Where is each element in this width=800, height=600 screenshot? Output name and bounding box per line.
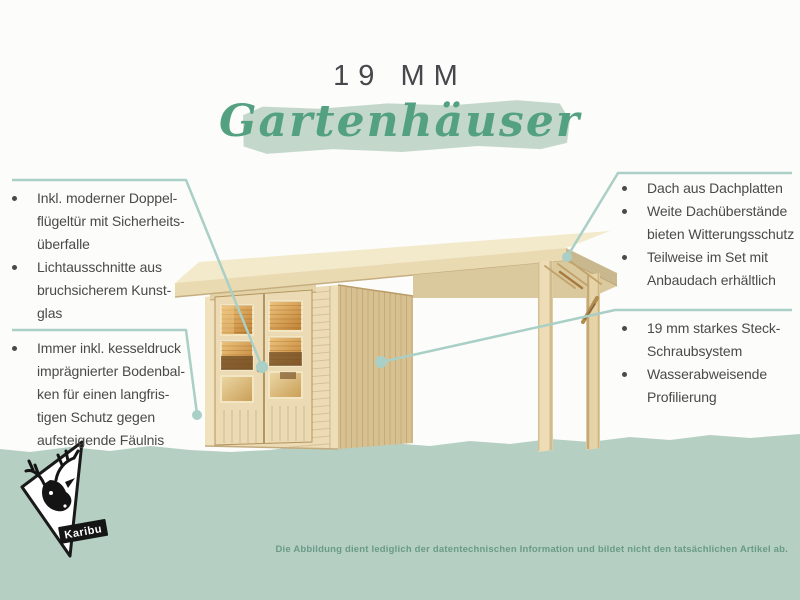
disclaimer-text: Die Abbildung dient lediglich der datent… — [268, 544, 788, 555]
feature-text: Weite Dachüberstände bieten Witterungssc… — [647, 200, 794, 246]
feature-text: Wasserabweisende Profilierung — [647, 363, 767, 409]
feature-list-left-bottom: Immer inkl. kesseldruck imprägnierter Bo… — [12, 337, 200, 452]
callout-dot-door — [256, 361, 268, 373]
feature-list-right-top: Dach aus Dachplatten Weite Dachüberständ… — [622, 177, 798, 292]
feature-item: Teilweise im Set mit Anbaudach erhältlic… — [622, 246, 798, 292]
feature-item: Dach aus Dachplatten — [622, 177, 798, 200]
feature-item: Weite Dachüberstände bieten Witterungssc… — [622, 200, 798, 246]
garden-shed-illustration — [175, 231, 617, 452]
feature-text: Lichtausschnitte aus bruchsicherem Kunst… — [37, 256, 171, 325]
feature-text: Inkl. moderner Doppel- flügeltür mit Sic… — [37, 187, 185, 256]
callout-dot-roof — [562, 252, 572, 262]
feature-item: 19 mm starkes Steck- Schraubsystem — [622, 317, 798, 363]
feature-list-left-top: Inkl. moderner Doppel- flügeltür mit Sic… — [12, 187, 194, 325]
bullet-dot — [622, 186, 627, 191]
feature-item: Lichtausschnitte aus bruchsicherem Kunst… — [12, 256, 194, 325]
feature-item: Inkl. moderner Doppel- flügeltür mit Sic… — [12, 187, 194, 256]
bullet-dot — [622, 209, 627, 214]
feature-text: Dach aus Dachplatten — [647, 177, 783, 200]
headline-size-label: 19 MM — [0, 60, 800, 93]
feature-text: Immer inkl. kesseldruck imprägnierter Bo… — [37, 337, 185, 452]
feature-text: 19 mm starkes Steck- Schraubsystem — [647, 317, 780, 363]
feature-item: Immer inkl. kesseldruck imprägnierter Bo… — [12, 337, 200, 452]
bullet-dot — [622, 326, 627, 331]
bullet-dot — [12, 346, 17, 351]
shed-side-wall — [338, 285, 413, 449]
bullet-dot — [622, 255, 627, 260]
bullet-dot — [622, 372, 627, 377]
bullet-dot — [12, 196, 17, 201]
bullet-dot — [12, 265, 17, 270]
feature-text: Teilweise im Set mit Anbaudach erhältlic… — [647, 246, 776, 292]
feature-list-right-bottom: 19 mm starkes Steck- Schraubsystem Wasse… — [622, 317, 798, 409]
ground-band — [0, 434, 800, 600]
page-title: Gartenhäuser — [0, 96, 800, 147]
callout-dot-wall — [375, 356, 387, 368]
feature-item: Wasserabweisende Profilierung — [622, 363, 798, 409]
